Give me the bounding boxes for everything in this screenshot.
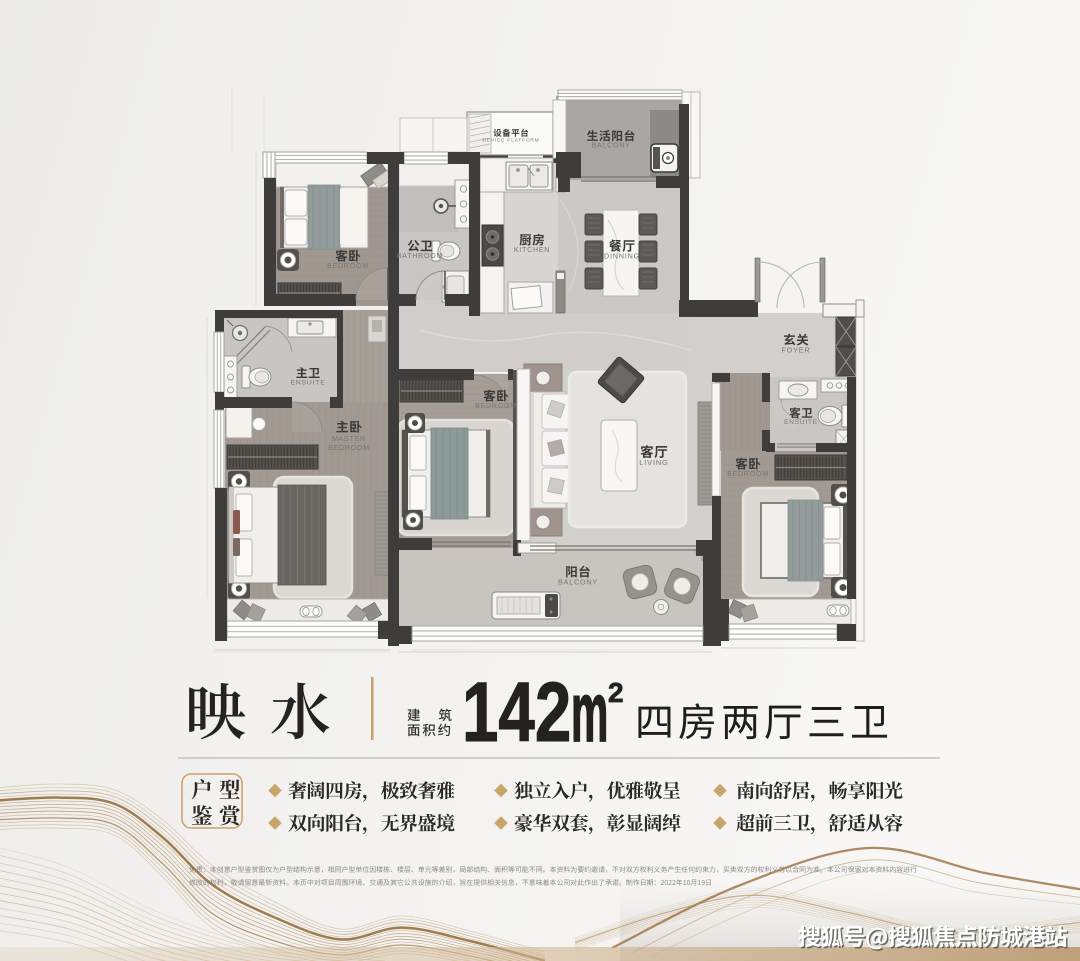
svg-text:142: 142 xyxy=(462,665,571,759)
svg-text:ENSUITE: ENSUITE xyxy=(784,419,818,426)
svg-text:BEDROOM: BEDROOM xyxy=(327,263,369,270)
svg-text:DEVICE PLATFORM: DEVICE PLATFORM xyxy=(483,137,540,143)
svg-text:MASTER: MASTER xyxy=(332,436,366,443)
svg-text:BEDROOM: BEDROOM xyxy=(328,445,370,452)
svg-text:DINNING: DINNING xyxy=(604,252,640,261)
svg-text:BALCONY: BALCONY xyxy=(591,143,630,150)
svg-text:BATHROOM: BATHROOM xyxy=(397,253,443,260)
svg-text:BEDROOM: BEDROOM xyxy=(727,471,769,478)
svg-text:LIVING: LIVING xyxy=(639,458,668,467)
svg-text:KITCHEN: KITCHEN xyxy=(514,247,550,254)
svg-text:FOYER: FOYER xyxy=(782,345,811,354)
svg-text:ENSUITE: ENSUITE xyxy=(290,380,325,387)
svg-text:BEDROOM: BEDROOM xyxy=(475,403,517,410)
svg-text:m: m xyxy=(571,666,608,760)
svg-text:BALCONY: BALCONY xyxy=(558,577,598,586)
svg-text:2: 2 xyxy=(608,677,624,708)
